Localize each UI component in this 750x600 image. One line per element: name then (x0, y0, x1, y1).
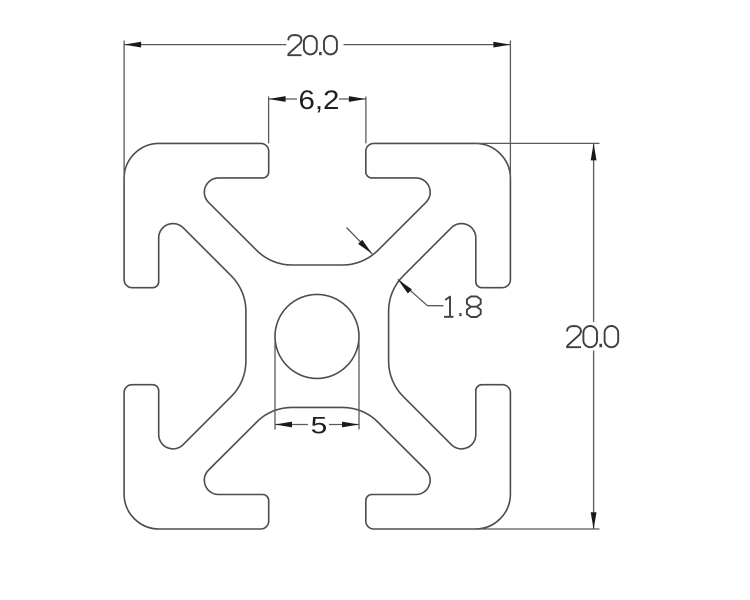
svg-text:6,2: 6,2 (298, 84, 339, 115)
svg-text:5: 5 (311, 411, 328, 438)
